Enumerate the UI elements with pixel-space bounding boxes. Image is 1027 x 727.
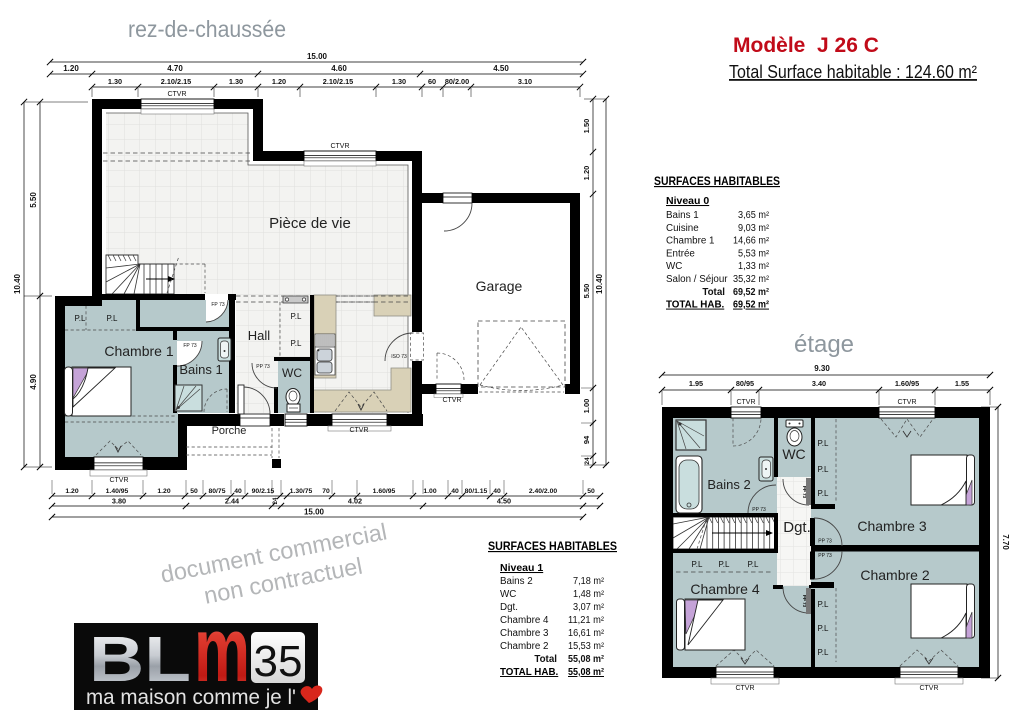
svg-text:CTVR: CTVR — [349, 427, 368, 434]
svg-text:Chambre 2: Chambre 2 — [860, 567, 929, 583]
svg-text:2.10/2.15: 2.10/2.15 — [323, 77, 353, 86]
svg-text:4.50: 4.50 — [493, 64, 509, 73]
svg-text:1.30: 1.30 — [229, 77, 243, 86]
svg-text:60: 60 — [428, 77, 436, 86]
svg-text:1,48 m²: 1,48 m² — [573, 589, 605, 600]
svg-text:Chambre 3: Chambre 3 — [857, 518, 926, 534]
svg-text:35,32 m²: 35,32 m² — [733, 274, 770, 285]
svg-text:9.30: 9.30 — [814, 364, 830, 373]
svg-text:14,66 m²: 14,66 m² — [733, 236, 770, 247]
svg-text:PP 73: PP 73 — [802, 486, 807, 499]
svg-text:Dgt.: Dgt. — [783, 519, 811, 536]
svg-text:Dgt.: Dgt. — [500, 602, 518, 613]
svg-text:CTVR: CTVR — [330, 143, 349, 150]
svg-text:1.30: 1.30 — [392, 77, 406, 86]
svg-text:Bains 2: Bains 2 — [500, 576, 533, 587]
svg-text:CTVR: CTVR — [167, 91, 186, 98]
svg-text:WC: WC — [782, 446, 805, 462]
svg-text:1.20: 1.20 — [272, 77, 286, 86]
svg-text:CTVR: CTVR — [736, 399, 755, 406]
svg-text:1.60/95: 1.60/95 — [373, 488, 396, 495]
svg-text:Total Surface habitable : 124.: Total Surface habitable : 124.60 m² — [729, 62, 977, 82]
svg-text:ma maison comme je l': ma maison comme je l' — [86, 686, 296, 709]
svg-text:24: 24 — [584, 457, 591, 465]
svg-text:P.L: P.L — [818, 600, 830, 609]
svg-text:Chambre 3: Chambre 3 — [500, 628, 549, 639]
svg-text:1.30: 1.30 — [108, 77, 122, 86]
svg-text:7.70: 7.70 — [1001, 534, 1010, 550]
svg-text:10.40: 10.40 — [595, 273, 604, 294]
svg-text:1.20: 1.20 — [157, 488, 170, 495]
svg-text:5.50: 5.50 — [29, 192, 38, 208]
svg-text:1.00: 1.00 — [582, 399, 591, 414]
svg-text:P.L: P.L — [818, 465, 830, 474]
svg-text:SURFACES HABITABLES: SURFACES HABITABLES — [488, 541, 617, 553]
svg-text:69,52 m²: 69,52 m² — [733, 300, 770, 311]
svg-text:Chambre 1: Chambre 1 — [104, 343, 173, 359]
svg-text:P.L: P.L — [291, 339, 303, 348]
svg-text:80/2.00: 80/2.00 — [445, 77, 469, 86]
svg-text:1.20: 1.20 — [65, 488, 78, 495]
svg-text:BL: BL — [89, 623, 191, 695]
svg-text:Pièce de vie: Pièce de vie — [269, 215, 351, 232]
svg-text:Total: Total — [534, 654, 557, 665]
svg-text:1.60/95: 1.60/95 — [895, 379, 919, 388]
svg-text:40: 40 — [493, 488, 501, 495]
svg-text:P.L: P.L — [75, 314, 87, 323]
svg-text:4.02: 4.02 — [348, 497, 362, 506]
svg-text:WC: WC — [666, 261, 682, 272]
svg-text:CTVR: CTVR — [442, 397, 461, 404]
svg-text:1.55: 1.55 — [955, 379, 969, 388]
svg-text:Cuisine: Cuisine — [666, 223, 699, 234]
svg-text:80/95: 80/95 — [736, 379, 754, 388]
svg-text:3.10: 3.10 — [518, 77, 532, 86]
svg-text:1.50: 1.50 — [582, 119, 591, 134]
svg-text:55,08 m²: 55,08 m² — [568, 654, 605, 665]
svg-text:50: 50 — [587, 488, 595, 495]
svg-text:2.10/2.15: 2.10/2.15 — [161, 77, 191, 86]
svg-text:4.50: 4.50 — [497, 497, 511, 506]
svg-text:5,53 m²: 5,53 m² — [738, 248, 770, 259]
svg-text:P.L: P.L — [692, 560, 704, 569]
svg-text:P.L: P.L — [818, 439, 830, 448]
svg-text:15,53 m²: 15,53 m² — [568, 641, 605, 652]
svg-text:WC: WC — [282, 366, 302, 380]
svg-text:15.00: 15.00 — [304, 508, 325, 517]
svg-text:rez-de-chaussée: rez-de-chaussée — [128, 16, 286, 42]
svg-text:94: 94 — [582, 435, 591, 444]
svg-text:1,33 m²: 1,33 m² — [738, 261, 770, 272]
svg-text:FP 73: FP 73 — [183, 343, 196, 349]
svg-text:P.L: P.L — [107, 314, 119, 323]
svg-text:2.44: 2.44 — [225, 497, 240, 506]
svg-text:40: 40 — [451, 488, 459, 495]
svg-text:4.90: 4.90 — [29, 374, 38, 390]
svg-text:Modèle J 26 C: Modèle J 26 C — [733, 34, 879, 57]
svg-text:15.00: 15.00 — [307, 52, 328, 61]
svg-text:1.20: 1.20 — [582, 166, 591, 181]
svg-text:50: 50 — [190, 488, 198, 495]
svg-text:CTVR: CTVR — [897, 399, 916, 406]
svg-text:Niveau 0: Niveau 0 — [666, 195, 709, 207]
svg-text:1.00: 1.00 — [423, 488, 436, 495]
svg-text:80/1.15: 80/1.15 — [465, 488, 488, 495]
svg-text:70: 70 — [322, 488, 330, 495]
svg-text:Chambre 1: Chambre 1 — [666, 236, 714, 247]
svg-text:24: 24 — [273, 497, 279, 504]
svg-text:P.L: P.L — [748, 560, 760, 569]
svg-text:TOTAL HAB.: TOTAL HAB. — [500, 667, 559, 678]
svg-text:FP 73: FP 73 — [211, 302, 224, 308]
svg-text:Chambre 4: Chambre 4 — [690, 581, 759, 597]
svg-text:Chambre 4: Chambre 4 — [500, 615, 549, 626]
svg-text:PP 73: PP 73 — [818, 553, 832, 559]
svg-text:3,65 m²: 3,65 m² — [738, 210, 770, 221]
svg-text:1.30/75: 1.30/75 — [290, 488, 313, 495]
svg-text:CTVR: CTVR — [109, 477, 128, 484]
svg-text:35: 35 — [254, 637, 303, 686]
svg-text:1.20: 1.20 — [63, 64, 79, 73]
svg-text:Bains 2: Bains 2 — [707, 477, 750, 492]
svg-text:SURFACES HABITABLES: SURFACES HABITABLES — [654, 176, 780, 188]
svg-text:CTVR: CTVR — [919, 685, 938, 692]
svg-text:40: 40 — [234, 488, 242, 495]
svg-text:Porche: Porche — [212, 425, 247, 437]
svg-text:4.60: 4.60 — [331, 64, 347, 73]
svg-text:3,07 m²: 3,07 m² — [573, 602, 605, 613]
svg-text:WC: WC — [500, 589, 516, 600]
svg-text:Bains 1: Bains 1 — [666, 210, 699, 221]
svg-text:PP 73: PP 73 — [256, 364, 270, 370]
svg-text:P.L: P.L — [818, 648, 830, 657]
svg-text:5.50: 5.50 — [582, 284, 591, 299]
svg-text:P.L: P.L — [818, 624, 830, 633]
svg-text:PP 73: PP 73 — [752, 507, 766, 513]
svg-text:TOTAL HAB.: TOTAL HAB. — [666, 300, 725, 311]
svg-text:Entrée: Entrée — [666, 248, 695, 259]
svg-text:4.70: 4.70 — [167, 64, 183, 73]
svg-text:90/2.15: 90/2.15 — [252, 488, 275, 495]
svg-text:CTVR: CTVR — [735, 685, 754, 692]
svg-text:ISO 73: ISO 73 — [391, 354, 407, 360]
svg-text:3.80: 3.80 — [112, 497, 126, 506]
svg-text:P.L: P.L — [818, 489, 830, 498]
svg-text:Bains 1: Bains 1 — [179, 362, 222, 377]
svg-text:16,61 m²: 16,61 m² — [568, 628, 605, 639]
svg-text:Hall: Hall — [248, 328, 271, 343]
svg-text:3.40: 3.40 — [812, 379, 826, 388]
svg-text:P.L: P.L — [719, 560, 731, 569]
svg-text:Garage: Garage — [476, 278, 523, 294]
svg-text:P.L: P.L — [291, 312, 303, 321]
svg-text:étage: étage — [794, 331, 854, 358]
svg-text:11,21 m²: 11,21 m² — [568, 615, 605, 626]
svg-text:55,08 m²: 55,08 m² — [568, 667, 605, 678]
svg-text:Niveau 1: Niveau 1 — [500, 562, 543, 574]
svg-text:1.95: 1.95 — [689, 379, 703, 388]
svg-text:Salon / Séjour: Salon / Séjour — [666, 274, 728, 285]
svg-text:Total: Total — [702, 287, 725, 298]
svg-text:9,03 m²: 9,03 m² — [738, 223, 770, 234]
svg-text:PP 73: PP 73 — [818, 539, 832, 545]
svg-text:7,18 m²: 7,18 m² — [573, 576, 605, 587]
svg-text:80/75: 80/75 — [208, 488, 225, 495]
svg-text:Chambre 2: Chambre 2 — [500, 641, 548, 652]
svg-text:2.40/2.00: 2.40/2.00 — [529, 488, 558, 495]
svg-text:1.40/95: 1.40/95 — [106, 488, 129, 495]
svg-text:10.40: 10.40 — [13, 273, 22, 294]
svg-text:PP 73: PP 73 — [802, 595, 807, 608]
svg-text:69,52 m²: 69,52 m² — [733, 287, 770, 298]
